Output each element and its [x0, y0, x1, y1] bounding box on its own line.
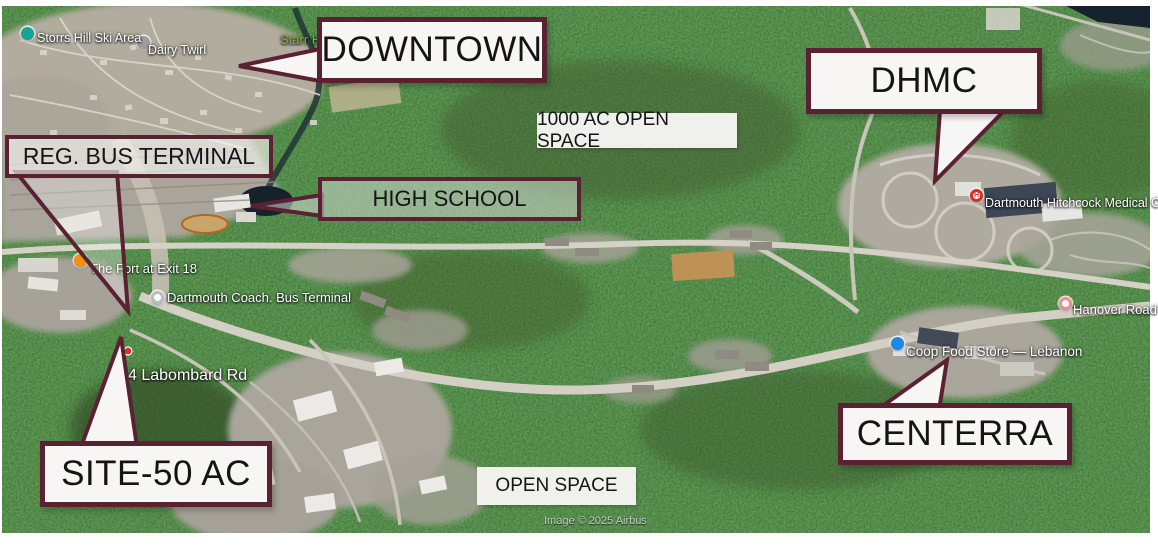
callout-downtown-label: DOWNTOWN	[321, 30, 542, 70]
park-pin-icon	[21, 27, 34, 40]
road-pin-icon	[1059, 297, 1072, 310]
poi-label-coop-food-store: Coop Food Store — Lebanon	[906, 344, 1082, 359]
label-1000-ac-open-space: 1000 AC OPEN SPACE	[537, 113, 737, 148]
callout-site-50-ac-label: SITE-50 AC	[61, 454, 251, 494]
callout-reg-bus-terminal-label: REG. BUS TERMINAL	[23, 143, 255, 170]
callout-centerra: CENTERRA	[838, 403, 1072, 465]
callout-dhmc: DHMC	[806, 48, 1042, 114]
poi-label-hanover-road: Hanover Road	[1073, 302, 1157, 317]
callout-high-school: HIGH SCHOOL	[318, 177, 581, 221]
restaurant-pin-icon	[74, 254, 87, 267]
transit-pin-icon	[151, 291, 164, 304]
callout-reg-bus-terminal: REG. BUS TERMINAL	[5, 135, 273, 178]
label-open-space: OPEN SPACE	[477, 467, 636, 505]
slide-canvas: H Storrs Hill Ski Area Dairy Twirl Starr…	[0, 0, 1158, 547]
poi-label-storrs-hill-ski-area: Storrs Hill Ski Area	[37, 31, 141, 45]
poi-label-the-fort-at-exit-18: The Fort at Exit 18	[90, 261, 197, 276]
poi-label-dairy-twirl: Dairy Twirl	[148, 43, 206, 57]
poi-label-dartmouth-hitchcock-medical-ctr: Dartmouth Hitchcock Medical Ctr	[985, 196, 1158, 210]
poi-label-starr-h: Starr H	[280, 32, 321, 47]
map-attribution: Image © 2025 Airbus	[544, 515, 647, 527]
label-open-space-text: OPEN SPACE	[495, 475, 617, 497]
store-pin-icon	[891, 337, 904, 350]
hospital-pin-letter: H	[973, 192, 980, 199]
callout-dhmc-label: DHMC	[871, 61, 978, 101]
callout-high-school-label: HIGH SCHOOL	[372, 186, 526, 212]
poi-label-dartmouth-coach-bus-terminal: Dartmouth Coach. Bus Terminal	[167, 290, 351, 305]
callout-site-50-ac: SITE-50 AC	[40, 441, 272, 507]
callout-centerra-label: CENTERRA	[857, 414, 1054, 454]
poi-label-labombard-rd: 4 Labombard Rd	[128, 367, 247, 385]
callout-downtown: DOWNTOWN	[317, 17, 547, 83]
label-1000-ac-open-space-text: 1000 AC OPEN SPACE	[537, 109, 737, 153]
hospital-pin-icon: H	[970, 189, 983, 202]
